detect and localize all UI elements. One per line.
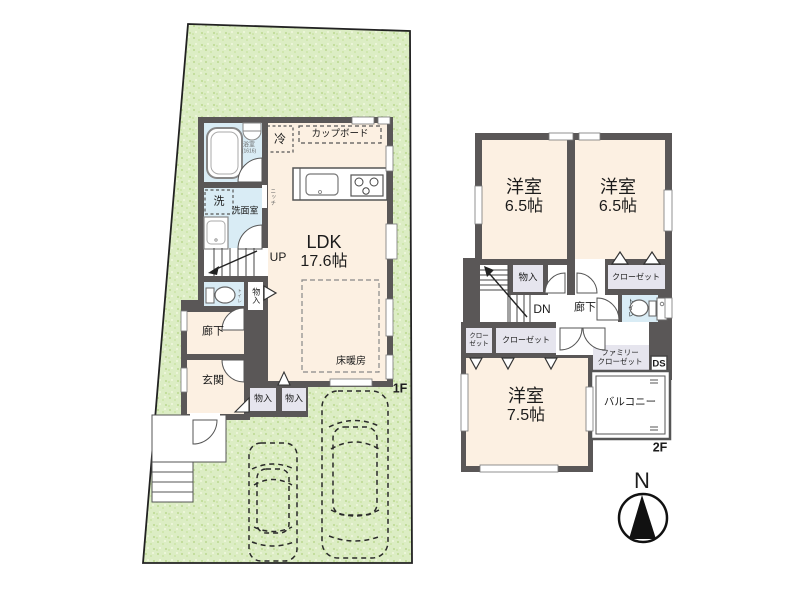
label-cupboard: カップボード <box>311 128 368 139</box>
label-washroom: 洗面室 <box>231 206 258 217</box>
label-closet-right: クローゼット <box>612 272 660 281</box>
label-bathroom: 浴室 (1616) <box>242 143 256 156</box>
label-storage-a: 物入 <box>254 394 272 405</box>
bathtub <box>207 128 242 178</box>
label-entrance: 玄関 <box>202 375 224 388</box>
label-laundry: 洗 <box>214 196 225 209</box>
floor-plan-canvas <box>0 0 800 600</box>
toilet-fixture-1f <box>206 287 235 303</box>
label-balcony: バルコニー <box>604 396 656 408</box>
floor-plan-page: 浴室 (1616) 洗 洗面室 ニッチ 冷 カップボード LDK 17.6帖 U… <box>0 0 800 600</box>
label-stairs-dn: DN <box>533 302 550 316</box>
label-niche: ニッチ <box>269 188 275 206</box>
label-floor2: 2F <box>653 441 668 456</box>
label-fridge: 冷 <box>274 132 286 146</box>
label-stairs-up: UP <box>270 250 287 264</box>
label-ldk: LDK 17.6帖 <box>300 232 347 272</box>
label-hallway-2f: 廊下 <box>574 302 596 315</box>
label-toilet-2f: トイレ <box>625 298 632 318</box>
label-family-closet: ファミリー クローゼット <box>598 349 643 367</box>
label-storage-side: 物入 <box>251 288 260 305</box>
label-floor-heating: 床暖房 <box>336 356 366 368</box>
label-toilet-1f: トイレ <box>237 289 242 304</box>
label-compass-north: N <box>634 468 650 494</box>
label-closet-small: クロー ゼット <box>469 332 489 347</box>
vanity-unit <box>204 217 228 249</box>
label-storage-b: 物入 <box>285 394 303 405</box>
entry-steps <box>152 462 193 502</box>
kitchen-counter <box>293 168 387 200</box>
label-floor1: 1F <box>393 382 408 397</box>
bath-washbasin <box>243 123 261 140</box>
label-hallway-1f: 廊下 <box>202 326 224 339</box>
label-storage-2f: 物入 <box>518 272 537 283</box>
label-bedroom-left: 洋室 6.5帖 <box>505 177 543 217</box>
kitchen-stove <box>351 175 383 196</box>
label-bedroom-main: 洋室 7.5帖 <box>507 386 545 426</box>
label-duct-space: DS <box>652 358 665 369</box>
compass <box>619 494 667 542</box>
label-bedroom-right: 洋室 6.5帖 <box>599 177 637 217</box>
label-closet-main: クローゼット <box>502 335 550 344</box>
kitchen-sink <box>306 174 338 195</box>
